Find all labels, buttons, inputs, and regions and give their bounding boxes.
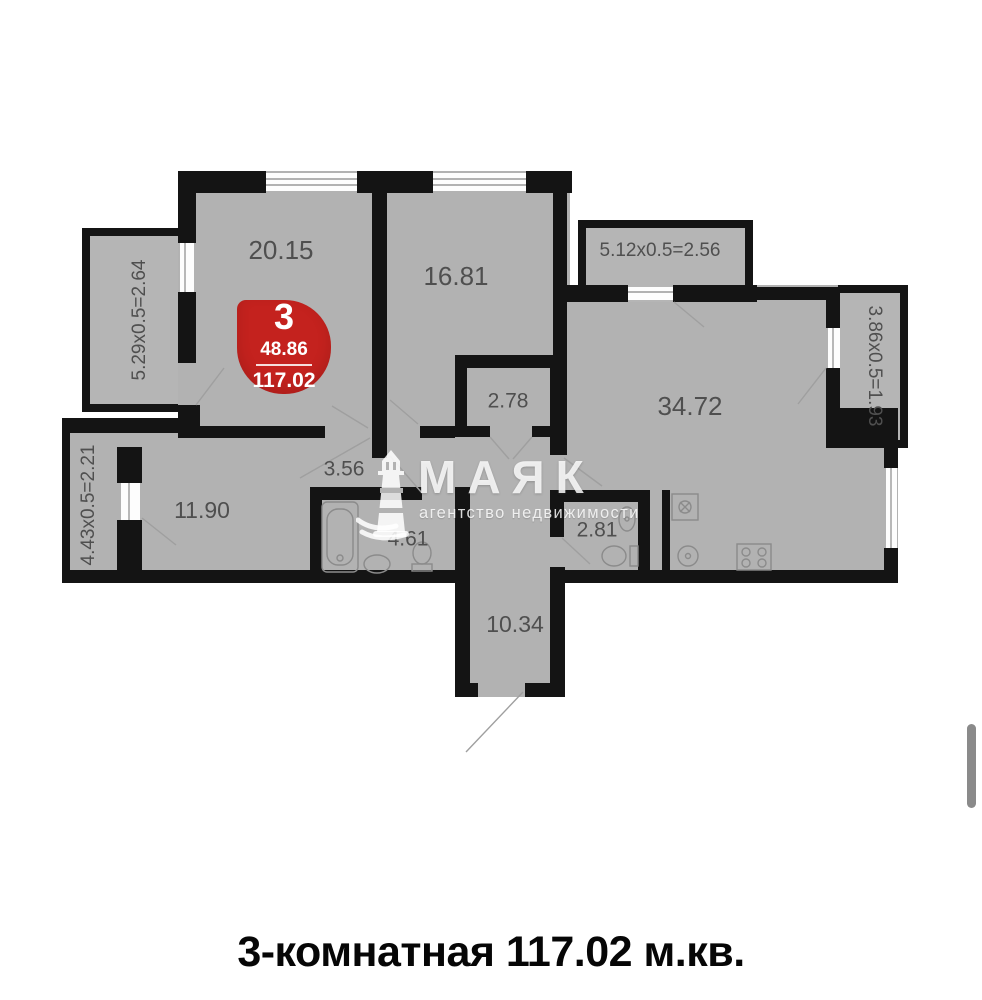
badge-total-area: 117.02 [252, 368, 315, 393]
balcony-label-top-right: 5.12x0.5=2.56 [600, 240, 721, 261]
plan-caption: 3-комнатная 117.02 м.кв. [0, 928, 982, 977]
screenshot-root: 20.15 16.81 2.78 3.56 34.72 11.90 4.61 2… [0, 0, 982, 1000]
balcony-label-left-lower: 4.43x0.5=2.21 [78, 445, 99, 566]
room-label-hallway: 3.56 [324, 458, 365, 481]
room-label-bedroom-left: 11.90 [174, 497, 230, 523]
badge-divider [256, 364, 312, 366]
balcony-label-left-upper: 5.29x0.5=2.64 [129, 259, 150, 380]
room-label-bathroom: 4.61 [388, 528, 429, 551]
room-label-bedroom-top-mid: 16.81 [423, 261, 488, 291]
badge-rooms-count: 3 [274, 299, 294, 335]
scrollbar-thumb[interactable] [967, 724, 976, 808]
room-label-kitchen-living: 34.72 [657, 391, 722, 421]
balcony-label-right: 3.86x0.5=1.93 [864, 306, 885, 427]
floorplan-drawing: 20.15 16.81 2.78 3.56 34.72 11.90 4.61 2… [0, 0, 982, 1000]
room-label-bedroom-top-left: 20.15 [248, 235, 313, 265]
room-label-closet: 2.78 [488, 390, 529, 413]
room-label-entry-corridor: 10.34 [486, 611, 544, 637]
room-label-wc: 2.81 [577, 519, 618, 542]
badge-living-area: 48.86 [260, 338, 308, 362]
area-badge: 3 48.86 117.02 [237, 300, 331, 394]
